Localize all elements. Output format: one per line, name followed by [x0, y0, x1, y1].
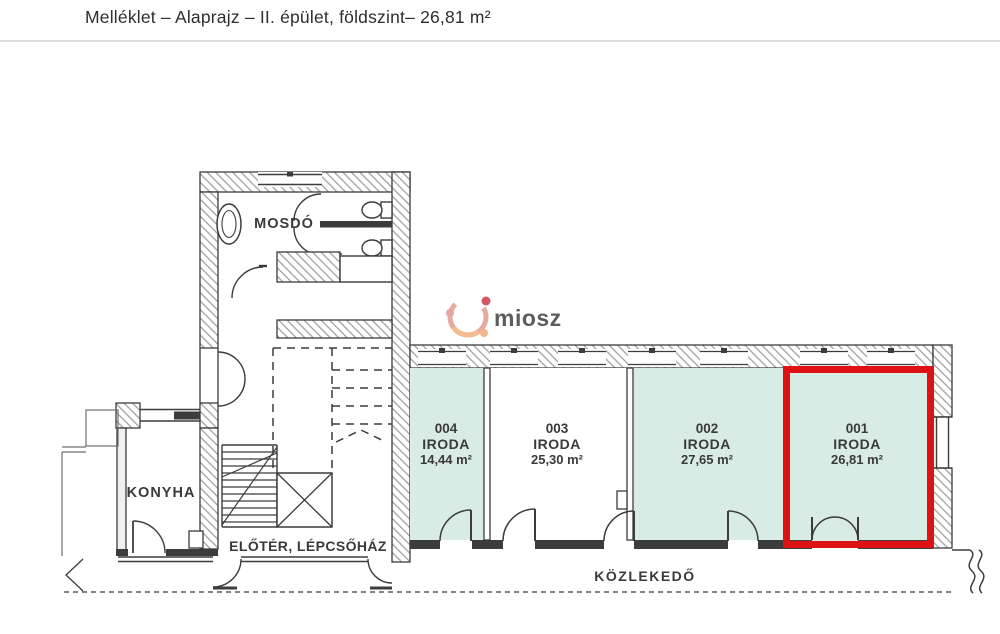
wall-hatched: [933, 345, 952, 417]
office-number: 004: [435, 421, 458, 436]
wall-thin: [484, 368, 490, 540]
office-type: IRODA: [683, 436, 731, 452]
office-area: 27,65 m²: [681, 452, 734, 467]
break-symbol-right: [952, 550, 984, 593]
toilet-icon: [362, 202, 392, 218]
break-symbol-left: [66, 559, 83, 591]
upper-treads-dashed: [273, 348, 392, 424]
wall-hatched: [200, 403, 218, 428]
office-number: 001: [846, 421, 869, 436]
corridor: KÖZLEKEDŐ: [64, 550, 984, 593]
wall-hatched: [116, 403, 140, 428]
exterior-steps: [62, 410, 118, 556]
toilet-icon: [362, 240, 392, 256]
window-lintel: [174, 412, 200, 420]
wall-thin: [627, 368, 633, 540]
watermark: miosz: [443, 292, 562, 342]
radiator: [189, 531, 203, 548]
door-jamb: [617, 491, 627, 509]
office-type: IRODA: [422, 436, 470, 452]
stall-partition: [320, 221, 392, 228]
wall-hatched: [392, 172, 410, 562]
office-number: 002: [696, 421, 719, 436]
floor-plan-page: Melléklet – Alaprajz – II. épület, földs…: [0, 0, 1000, 634]
kitchen-block: KONYHA: [62, 403, 218, 557]
office-area: 26,81 m²: [831, 452, 884, 467]
miosz-logo-icon: [443, 292, 493, 342]
wall-hatched: [933, 468, 952, 548]
double-door-arcs: [218, 352, 245, 406]
kitchen-label: KONYHA: [127, 485, 196, 501]
wall-lines: [200, 348, 218, 403]
floor-plan-drawing: MOSDÓ KONYHA: [0, 0, 1000, 634]
sink-icon: [217, 204, 241, 244]
office-number: 003: [546, 421, 569, 436]
office-area: 14,44 m²: [420, 452, 473, 467]
foyer-label: ELŐTÉR, LÉPCSŐHÁZ: [229, 537, 387, 554]
corridor-top-lines: [118, 557, 368, 562]
shaft-hatched: [277, 252, 340, 282]
washroom-label: MOSDÓ: [254, 214, 314, 232]
wall-hatched: [277, 320, 392, 338]
window-tick: [287, 172, 293, 177]
office-wing: 004 IRODA 14,44 m² 003 IRODA 25,30 m² 00…: [410, 345, 952, 548]
ledge: [340, 256, 392, 282]
office-type: IRODA: [533, 436, 581, 452]
wall-thin: [117, 428, 126, 552]
corridor-label: KÖZLEKEDŐ: [594, 567, 695, 584]
direction-chevron: [336, 430, 386, 442]
office-area: 25,30 m²: [531, 452, 584, 467]
door-arc: [232, 267, 263, 298]
watermark-text: miosz: [494, 305, 562, 331]
door-arcs: [213, 559, 392, 587]
wall-hatched: [200, 192, 218, 348]
upper-flight-dashed: [273, 348, 332, 473]
office-type: IRODA: [833, 436, 881, 452]
stairwell: ELŐTÉR, LÉPCSŐHÁZ: [222, 348, 392, 554]
